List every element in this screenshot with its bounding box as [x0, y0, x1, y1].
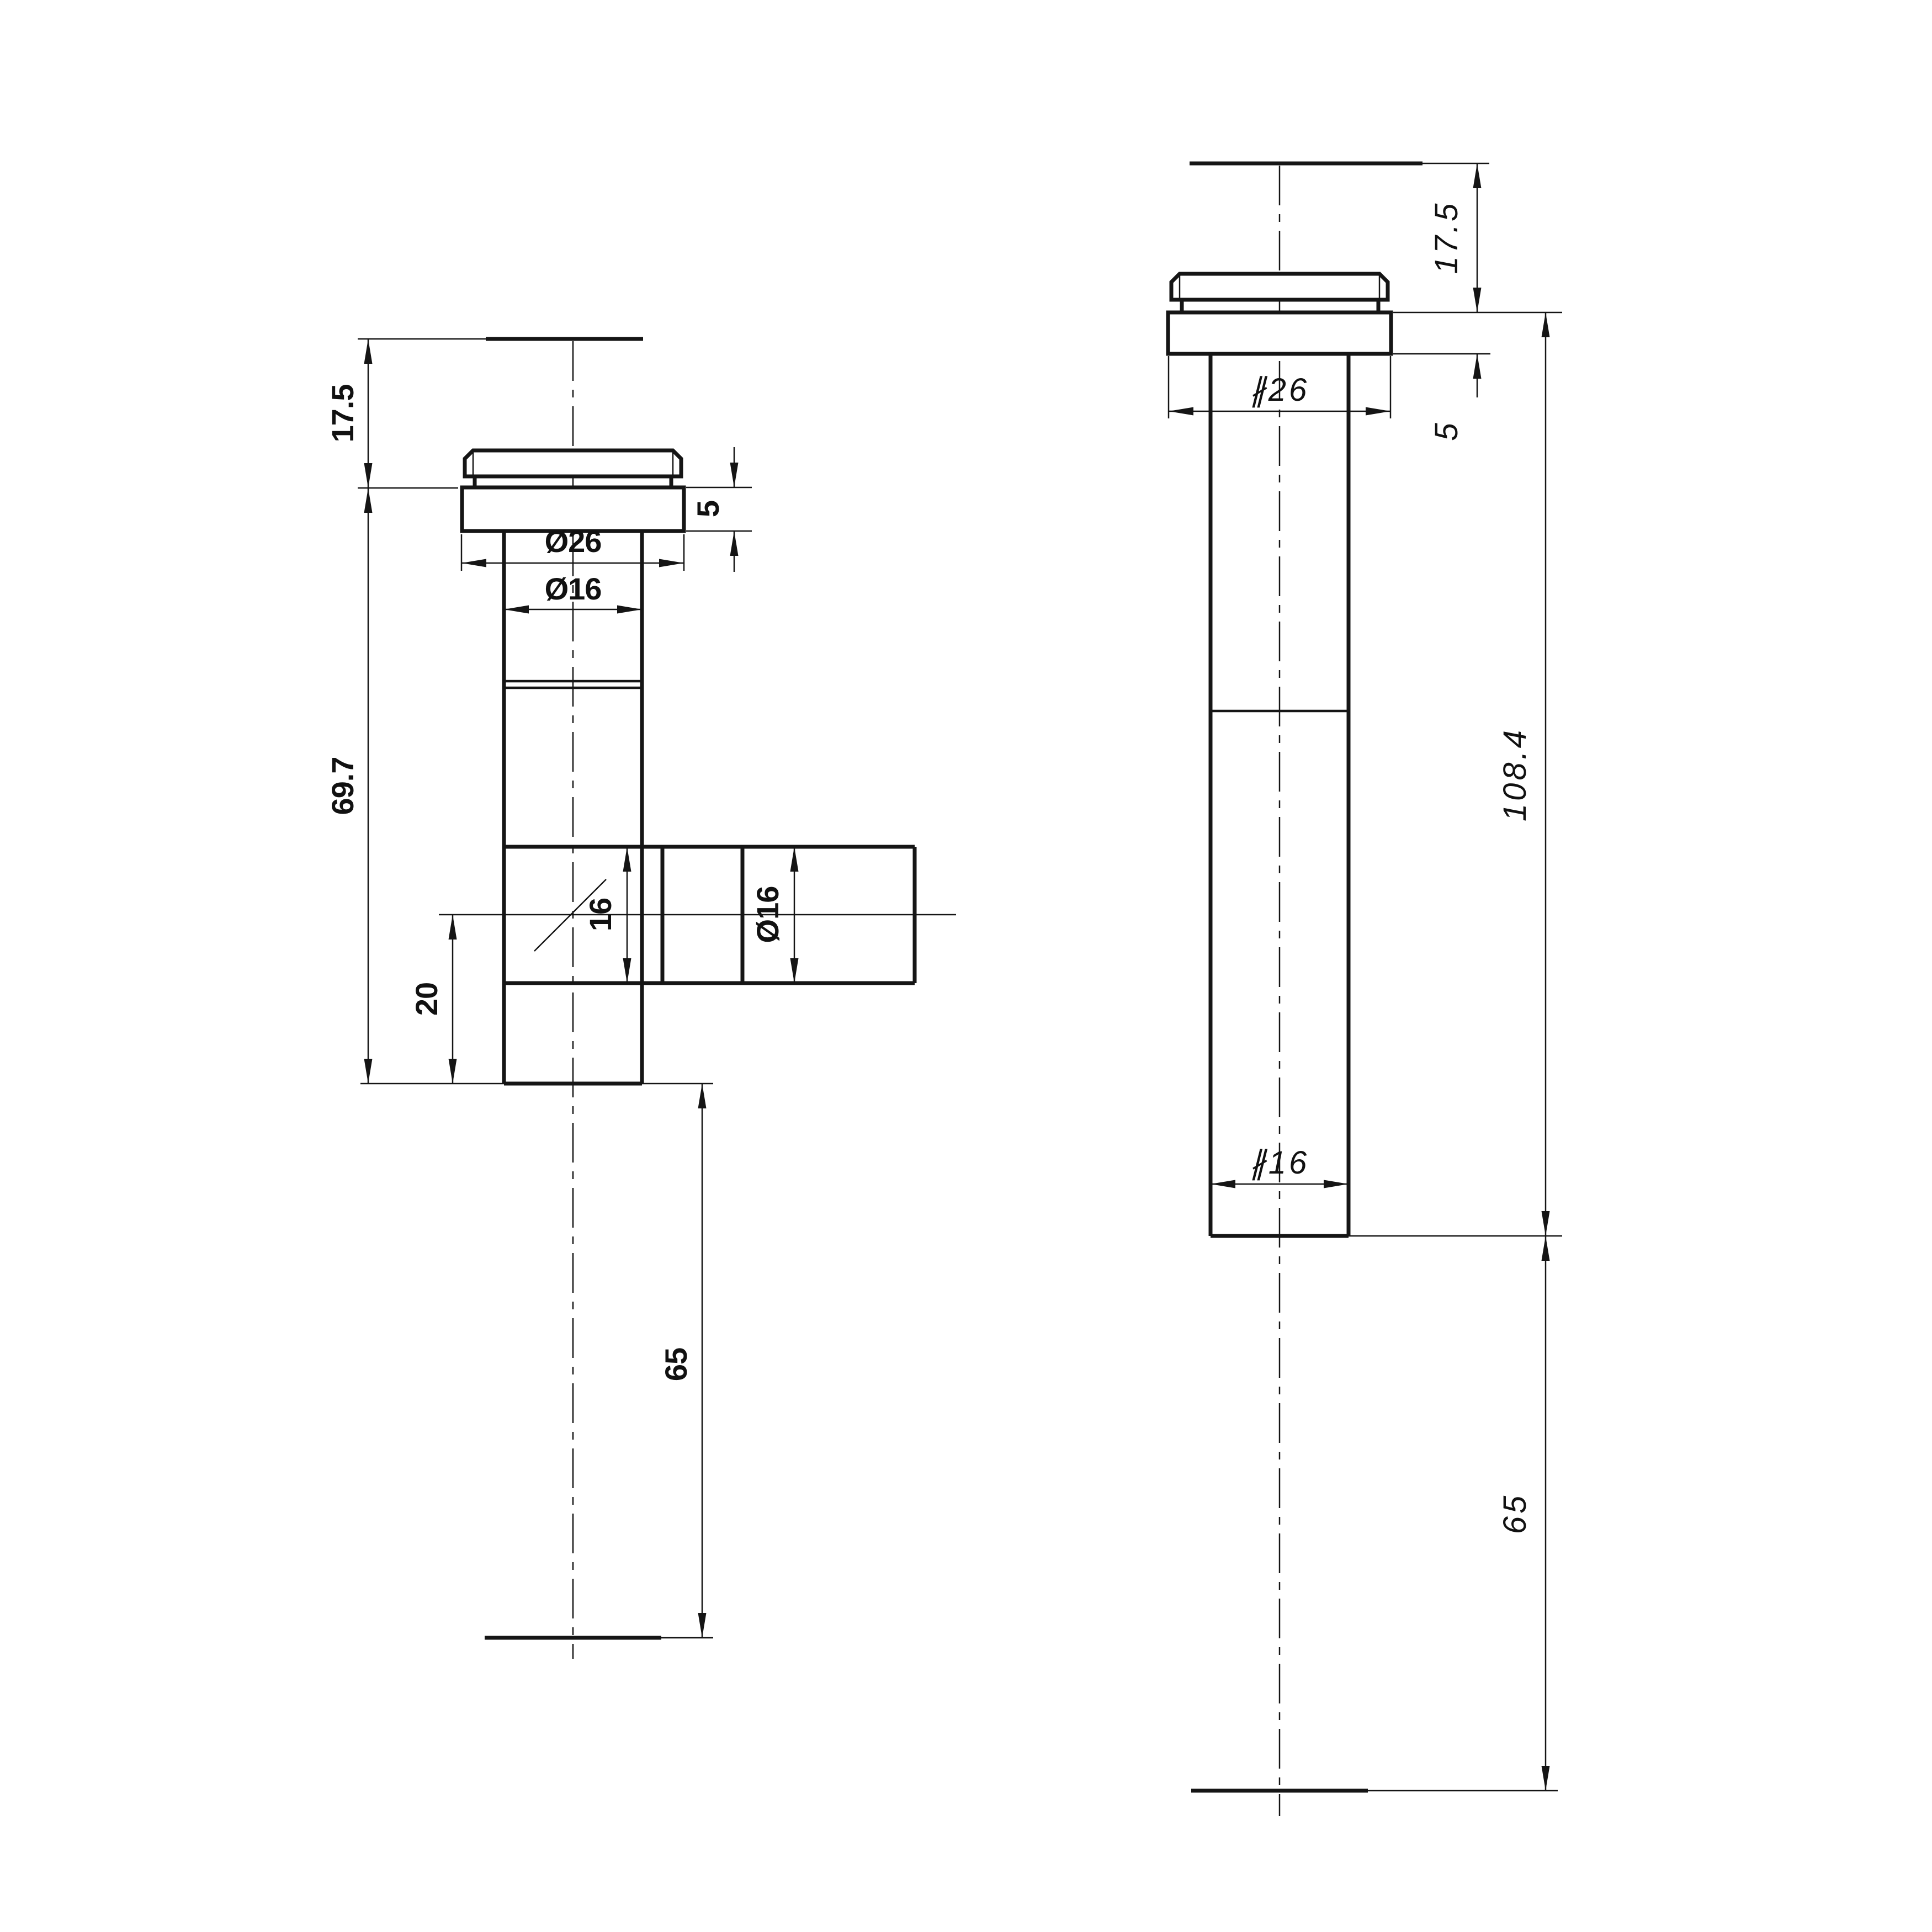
right-cap-outline: [1171, 274, 1388, 300]
right-dim-17-5-label: 17.5: [1429, 201, 1464, 274]
left-dim-dia16-tube-label: Ø16: [545, 571, 602, 606]
right-dim-108-4-label: 108.4: [1497, 728, 1533, 821]
right-dim-65-label: 65: [1497, 1493, 1533, 1535]
drawing-sheet: 17.5 69.7 20 5 Ø26 Ø16: [0, 0, 1932, 1932]
right-dim-5-label: 5: [1429, 420, 1464, 440]
left-dim-16-bore-label: 16: [583, 898, 618, 931]
right-dim-dia26-label: ∦26: [1250, 372, 1310, 408]
right-dim-dia16-label: ∦16: [1250, 1145, 1310, 1181]
left-cap-outline: [465, 450, 681, 476]
left-dim-5-label: 5: [691, 501, 725, 517]
left-dim-65-label: 65: [659, 1348, 693, 1381]
left-dim-69-7-label: 69.7: [325, 757, 360, 815]
right-flange-outline: [1168, 312, 1391, 354]
sheet-background: [0, 0, 1932, 1932]
left-dim-dia26-label: Ø26: [545, 524, 602, 559]
left-dim-dia16-branch-label: Ø16: [750, 887, 785, 943]
left-dim-20-label: 20: [409, 983, 444, 1016]
left-dim-17-5-label: 17.5: [325, 385, 360, 443]
